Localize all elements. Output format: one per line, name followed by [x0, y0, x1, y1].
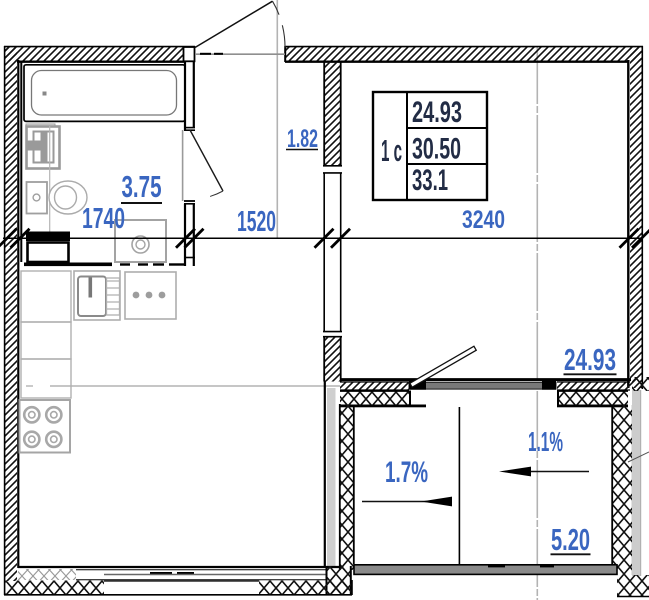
svg-text:3.75: 3.75 [122, 169, 162, 204]
svg-text:24.93: 24.93 [412, 96, 462, 129]
svg-text:24.93: 24.93 [564, 342, 616, 377]
svg-text:3240: 3240 [462, 206, 505, 234]
svg-text:1 c: 1 c [381, 133, 402, 168]
svg-text:5.20: 5.20 [551, 522, 590, 557]
svg-text:30.50: 30.50 [412, 133, 461, 166]
svg-text:1740: 1740 [82, 203, 125, 235]
svg-text:1520: 1520 [237, 206, 276, 238]
svg-text:1.1%: 1.1% [528, 426, 563, 457]
svg-text:1.7%: 1.7% [385, 456, 428, 489]
svg-text:33.1: 33.1 [412, 164, 448, 197]
